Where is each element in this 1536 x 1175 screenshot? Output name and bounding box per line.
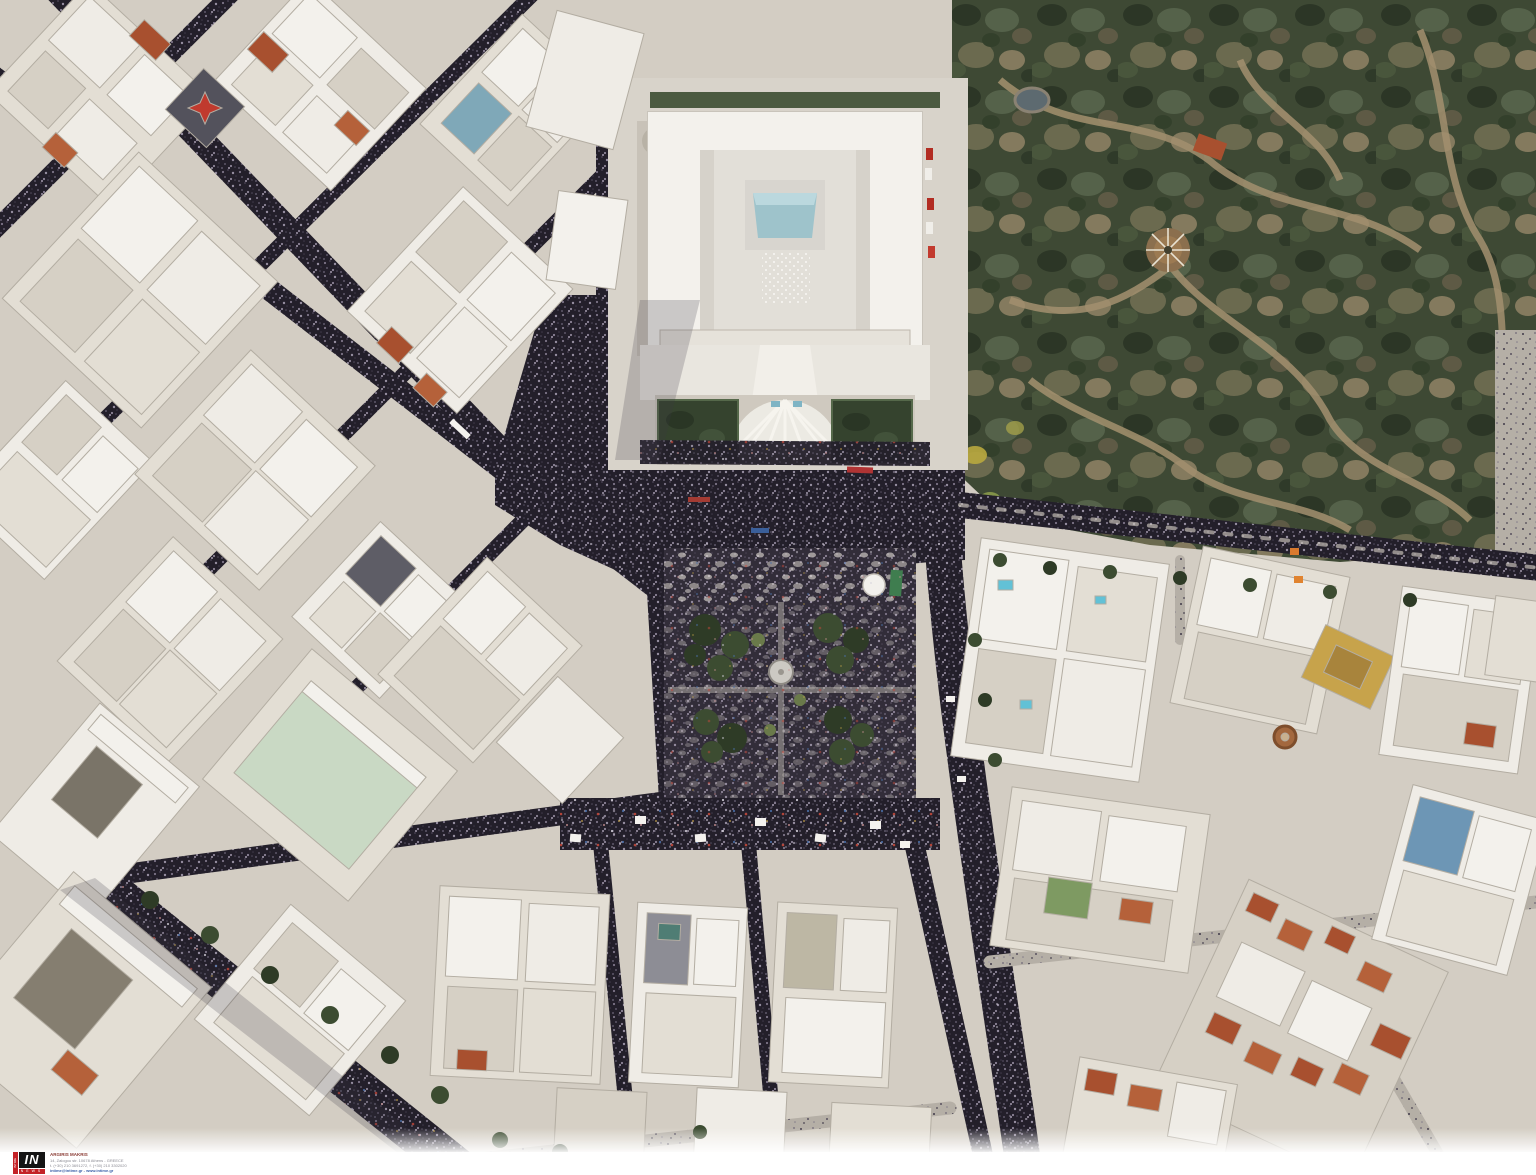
aerial-photo — [0, 0, 1536, 1175]
bottom-fade — [0, 1128, 1536, 1154]
south-facade — [660, 330, 910, 346]
intime-logo-main-text: IN — [19, 1152, 45, 1168]
orange-tent — [1294, 576, 1303, 583]
protest-banner — [751, 528, 769, 533]
intime-logo-bottom-text: NEWS — [19, 1169, 45, 1174]
garden-pond — [1015, 88, 1049, 112]
protest-banner — [688, 497, 710, 502]
orange-tent — [1290, 548, 1299, 555]
agency-web: intime@intime.gr - www.intime.gr — [50, 1168, 127, 1173]
watermark: INTIME IN NEWS ARGIRIS MAKRIS 14, Zalogo… — [13, 1152, 127, 1174]
protest-banner — [847, 467, 873, 474]
syntagma-square — [664, 548, 916, 798]
watermark-bar: INTIME IN NEWS ARGIRIS MAKRIS 14, Zalogo… — [0, 1152, 1536, 1175]
skylight-dots — [762, 252, 810, 304]
intime-logo-side-text: INTIME — [13, 1152, 18, 1174]
aerial-photo-stage: INTIME IN NEWS ARGIRIS MAKRIS 14, Zalogo… — [0, 0, 1536, 1175]
building-cluster — [768, 902, 897, 1088]
building-cluster — [951, 538, 1170, 782]
green-roof-building — [1044, 877, 1093, 919]
photo-credit: ARGIRIS MAKRIS 14, Zalogou str. 10678 At… — [50, 1152, 127, 1173]
building-cluster — [990, 787, 1210, 973]
garden-flower-wheel — [1146, 228, 1190, 272]
intime-logo: INTIME IN NEWS — [13, 1152, 45, 1174]
north-hedge — [650, 92, 940, 108]
building-cluster — [628, 902, 747, 1088]
national-garden — [952, 0, 1536, 565]
garden-side-street — [1495, 330, 1536, 565]
